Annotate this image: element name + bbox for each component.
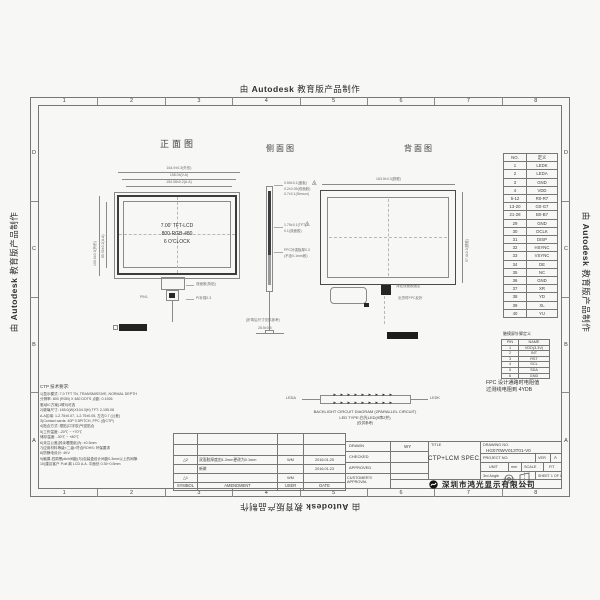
revision-symbol: △2 — [174, 456, 198, 465]
table-cell: 34 — [504, 260, 527, 268]
circuit-lead-right — [411, 399, 428, 400]
table-cell: GND — [527, 277, 558, 285]
revision-row: 新做 2016.01.23 — [174, 465, 346, 474]
watermark-text: 教育版产品制作 — [297, 84, 360, 94]
annotation-label: 1.75±0.1(TFT) — [284, 223, 306, 227]
dimension-label: 163.9±0.3(铁框) — [322, 177, 455, 181]
dimension-line — [106, 202, 107, 268]
zone-cell: 1 — [31, 97, 98, 105]
panel-spec-line2: 800-RGB-480 — [127, 230, 227, 238]
revision-row: △1 WM — [174, 474, 346, 483]
ctp-table-body: 1 VDD(3.3V) 2 INT 3 RST 4 SCL 5 SDA 6 GN… — [502, 345, 550, 379]
revision-symbol: △1 — [174, 474, 198, 483]
table-row: 2 LEDA — [504, 170, 558, 178]
amendment-header: AMENDMENT — [198, 483, 278, 491]
led-row-icons: ▸▸▸▸▸▸▸▸▸ — [321, 392, 409, 399]
leader-line — [186, 285, 194, 286]
ctp-table-title: 触摸屏针脚定义 — [503, 332, 531, 337]
table-cell: 21-28 — [504, 211, 527, 219]
table-row: 1 LEDK — [504, 162, 558, 170]
revision-triangle-number: 2 — [314, 182, 316, 186]
revision-text: 双面胶厚度由1.2mm更改为0.1mm — [198, 456, 278, 465]
zone-cell: D — [30, 106, 38, 202]
revision-empty-rows — [174, 434, 346, 456]
revision-symbol — [174, 465, 198, 474]
ctp-pin-table: PIN NAME 1 VDD(3.3V) 2 INT 3 RST 4 SCL 5… — [501, 339, 550, 379]
zone-cell: 2 — [98, 97, 165, 105]
dimension-line — [462, 192, 463, 283]
table-cell: XL — [527, 301, 558, 309]
table-cell: 35 — [504, 268, 527, 276]
approved-label: APPROVED — [349, 466, 371, 471]
checked-label: CHECKED — [349, 455, 369, 460]
backlight-caption: BACKLIGHT CIRCUIT DIAGRAM (2PARALLEL CIR… — [295, 409, 435, 426]
zone-cell: D — [562, 106, 570, 202]
revision-rows: △2 双面胶厚度由1.2mm更改为0.1mm WM 2016.01.25 新做 … — [174, 456, 346, 483]
title-block-line — [345, 451, 428, 452]
dimension-label: 158.04(V.A) — [122, 173, 236, 177]
table-cell: HSYNC — [527, 244, 558, 252]
zone-cell: 8 — [503, 97, 569, 105]
watermark-text: 由 — [240, 84, 249, 94]
table-cell: 39 — [504, 301, 527, 309]
table-cell: 40 — [504, 309, 527, 317]
table-cell: 30 — [504, 227, 527, 235]
zone-cell: 7 — [435, 97, 502, 105]
watermark-text: 教育版产品制作 — [240, 502, 303, 512]
watermark-left: 由 Autodesk 教育版产品制作 — [8, 172, 20, 372]
dimension-line — [126, 186, 232, 187]
table-cell: DCLK — [527, 227, 558, 235]
title-block-line — [550, 453, 551, 462]
fpc-stiffener-block — [169, 293, 175, 298]
fpc-connector-front — [119, 324, 147, 331]
table-cell: VDD — [527, 186, 558, 194]
table-row: 5-12 R0-R7 — [504, 195, 558, 203]
fpc-note: FPC 设计通路时电阻值 过测线电阻到 4YDB — [486, 380, 566, 395]
symbol-header: SYMBOL — [174, 483, 198, 491]
table-row: 4 VDD — [504, 186, 558, 194]
led-row-icons: ▸▸▸▸▸▸▸▸▸ — [321, 400, 409, 407]
table-cell: DE — [527, 260, 558, 268]
table-row: 40 YU — [504, 309, 558, 317]
table-cell: 2 — [504, 170, 527, 178]
company-logo — [429, 480, 438, 489]
table-cell: LEDA — [527, 170, 558, 178]
table-cell: 6 — [502, 373, 519, 379]
watermark-right: 由 Autodesk 教育版产品制作 — [580, 172, 592, 372]
table-row: 37 XR — [504, 285, 558, 293]
dimension-label: 85.92±0.2(A.A) — [101, 234, 105, 258]
title-label: TITLE — [431, 443, 441, 448]
table-cell: 29 — [504, 219, 527, 227]
scale-value: FIT — [549, 465, 555, 470]
unit-value: mm — [511, 465, 517, 470]
scale-label: SCALE — [524, 465, 536, 470]
technical-notes: CTP 技术要求: 1)显示模式: 7.0 TFT TN, TRANSMISSI… — [40, 384, 174, 467]
watermark-text: 由 — [581, 212, 591, 221]
panel-spec-line3: 6 O'CLOCK — [127, 238, 227, 246]
revision-date: 2016.01.25 — [304, 456, 346, 465]
annotation-label: PIN1 — [140, 295, 148, 299]
table-cell: 38 — [504, 293, 527, 301]
title-block-line — [508, 462, 509, 471]
leader-line — [274, 252, 283, 253]
table-row: 29 GND — [504, 219, 558, 227]
table-cell: NC — [527, 268, 558, 276]
annotation-label: 双面胶(背贴) — [196, 282, 216, 286]
panel-spec-line1: 7.00' TFT-LCD — [127, 222, 227, 230]
notes-lines: 1)显示模式: 7.0 TFT TN, TRANSMISSIVE, NORMAL… — [40, 392, 174, 467]
zone-cell: 6 — [368, 489, 435, 497]
table-cell: GND — [527, 178, 558, 186]
zone-cell: 1 — [31, 489, 98, 497]
dimension-line — [99, 196, 100, 276]
zone-cell: 2 — [98, 489, 165, 497]
annotation-label: PI补强0.3 — [196, 296, 211, 300]
annotation-label: 0.55±0.1(盖板) — [284, 181, 307, 185]
zone-cell: 6 — [368, 97, 435, 105]
fpc-connector-tab — [113, 325, 118, 330]
revision-user: WM — [278, 456, 304, 465]
circuit-rail-end — [410, 395, 411, 404]
watermark-bottom: 由 Autodesk 教育版产品制作 — [0, 501, 600, 513]
table-cell: G0-G7 — [527, 203, 558, 211]
fpc-note-line2: 过测线电阻到 4YDB — [486, 387, 566, 394]
revision-header-row: SYMBOL AMENDMENT USER DATE — [174, 483, 346, 491]
pin-no-header: NO. — [504, 154, 527, 162]
drawing-no-label: DRAWING NO. — [483, 443, 509, 448]
table-cell: 1 — [504, 162, 527, 170]
zone-cell: B — [562, 298, 570, 394]
dimension-label: 164.9±0.3(外形) — [118, 166, 240, 170]
sheet-label: SHEET 1 OF 1 — [538, 474, 562, 478]
side-profile-fill-light — [268, 255, 271, 285]
user-header: USER — [278, 483, 304, 491]
table-row: 1 VDD(3.3V) — [502, 345, 550, 351]
table-cell: 37 — [504, 285, 527, 293]
revision-text: 新做 — [198, 465, 278, 474]
zone-cell: C — [30, 202, 38, 298]
table-row: 21-28 B0-B7 — [504, 211, 558, 219]
watermark-text: 由 — [9, 323, 19, 332]
table-row: 33 VSYNC — [504, 252, 558, 260]
back-fpc-connector — [387, 332, 418, 339]
back-fpc-stiffener — [381, 285, 391, 295]
document-title: CTP+LCM SPEC. — [428, 455, 480, 462]
project-no-label: PROJECT NO. — [483, 456, 508, 461]
company-name: 深圳市鸿光显示有限公司 — [442, 480, 536, 489]
revision-table: △2 双面胶厚度由1.2mm更改为0.1mm WM 2016.01.25 新做 … — [173, 433, 346, 491]
angle-label: 3rd Angle — [483, 474, 499, 479]
leda-label: LEDA — [286, 396, 296, 401]
drawn-label: DRAWN — [349, 444, 364, 449]
side-profile-fill-dark — [268, 191, 271, 255]
table-cell: GND — [519, 373, 550, 379]
back-fpc-fold-outline — [330, 287, 367, 304]
back-view-title: 背面图 — [404, 144, 434, 154]
table-cell: R0-R7 — [527, 195, 558, 203]
title-block-line — [535, 453, 536, 462]
title-block-line — [543, 462, 544, 471]
note-line: 10)建议客户 P.olt 离 LCD A.A. 平面处 0.35~0.5mm — [40, 462, 174, 467]
table-cell: YD — [527, 293, 558, 301]
table-cell: 33 — [504, 252, 527, 260]
annotation-label: 背贴双面胶固定 — [396, 284, 421, 288]
table-cell: YU — [527, 309, 558, 317]
dimension-line — [322, 184, 455, 185]
title-block-line — [345, 473, 428, 474]
table-cell: LEDK — [527, 162, 558, 170]
pin-definition-table: NO. 定义 1 LEDK 2 LEDA 3 GND 4 VDD 5-12 R0… — [503, 153, 558, 318]
annotation-label: FPC补强板厚0.3 — [284, 248, 310, 252]
ledk-label: LEDK — [430, 396, 440, 401]
title-block-line — [345, 462, 428, 463]
table-cell: 36 — [504, 277, 527, 285]
side-fpc-line — [269, 292, 270, 330]
drawing-no-value: HG070WV013T01-V0 — [486, 448, 531, 454]
zone-cell: A — [30, 393, 38, 488]
dimension-line — [256, 333, 284, 334]
back-fpc-dot — [364, 303, 369, 307]
revision-text — [198, 474, 278, 483]
dimension-label: 28.5±0.5 — [258, 326, 272, 330]
zone-cell: 8 — [503, 489, 569, 497]
table-row: 6 GND — [502, 373, 550, 379]
zone-cell: A — [562, 393, 570, 488]
zone-numbers-top: 1 2 3 4 5 6 7 8 — [31, 97, 569, 105]
table-row: 3 GND — [504, 178, 558, 186]
table-cell: B0-B7 — [527, 211, 558, 219]
leader-line — [384, 296, 385, 324]
watermark-brand: Autodesk — [9, 278, 19, 321]
revision-date: 2016.01.23 — [304, 465, 346, 474]
leader-line — [186, 299, 194, 300]
table-cell: VSYNC — [527, 252, 558, 260]
table-header-row: NO. 定义 — [504, 154, 558, 162]
centerline-horizontal — [329, 237, 447, 238]
table-row: 35 NC — [504, 268, 558, 276]
table-row: 36 GND — [504, 277, 558, 285]
table-row: 38 YD — [504, 293, 558, 301]
watermark-top: 由 Autodesk 教育版产品制作 — [0, 83, 600, 95]
table-row — [174, 445, 346, 456]
title-block-line — [535, 471, 536, 479]
title-block-line — [521, 462, 522, 471]
table-row: 39 XL — [504, 301, 558, 309]
revision-row: △2 双面胶厚度由1.2mm更改为0.1mm WM 2016.01.25 — [174, 456, 346, 465]
table-cell: 5-12 — [504, 195, 527, 203]
annotation-label: 出货时FPC反折 — [398, 296, 423, 300]
zone-cell: B — [30, 298, 38, 394]
ver-value: A — [554, 455, 557, 460]
side-view-title: 侧面图 — [266, 144, 296, 154]
annotation-label: 0.2±0.05(双面胶) — [284, 187, 310, 191]
table-row — [174, 434, 346, 445]
annotation-label: (折弯后尺寸仅供参考) — [246, 318, 280, 322]
dimension-label: 154.08±0.2(A.A) — [126, 180, 232, 184]
panel-spec-text: 7.00' TFT-LCD 800-RGB-480 6 O'CLOCK — [127, 222, 227, 246]
table-row: 30 DCLK — [504, 227, 558, 235]
table-row: 13-20 G0-G7 — [504, 203, 558, 211]
table-row: 31 DISP — [504, 236, 558, 244]
revision-triangle-icon: △2 — [312, 180, 317, 187]
leader-line — [274, 227, 283, 228]
annotation-label: (不含0.1mm胶) — [284, 254, 308, 258]
fpc-wire-line — [172, 301, 173, 322]
unit-label: UNIT — [489, 465, 498, 470]
revision-date — [304, 474, 346, 483]
revision-triangle-icon: △1 — [305, 221, 310, 228]
dimension-label: 100.0±0.3(外形) — [93, 241, 97, 266]
customer-approval-label: CUSTOMER'S APPROVAL — [347, 476, 389, 486]
watermark-brand: Autodesk — [581, 224, 591, 267]
ver-label: VER — [538, 456, 546, 461]
table-cell: GND — [527, 219, 558, 227]
table-cell: 4 — [504, 186, 527, 194]
leader-line — [274, 185, 283, 186]
table-cell: 13-20 — [504, 203, 527, 211]
title-block-line — [390, 441, 391, 489]
backlight-caption-line3: (仅供参考) — [295, 421, 435, 426]
drawn-value: WY — [404, 444, 411, 449]
zone-cell: C — [562, 202, 570, 298]
revision-user — [278, 465, 304, 474]
front-view-title: 正面图 — [160, 139, 196, 150]
table-cell: 3 — [504, 178, 527, 186]
watermark-brand: Autodesk — [252, 84, 295, 94]
table-cell: 32 — [504, 244, 527, 252]
watermark-text: 由 — [351, 502, 360, 512]
zone-cell: 4 — [233, 97, 300, 105]
watermark-brand: Autodesk — [306, 502, 349, 512]
notes-title: CTP 技术要求: — [40, 384, 174, 390]
annotation-label: 0.1(双面胶) — [284, 229, 302, 233]
table-cell: XR — [527, 285, 558, 293]
table-row: 32 HSYNC — [504, 244, 558, 252]
zone-letters-right: D C B A — [562, 106, 570, 488]
revision-user: WM — [278, 474, 304, 483]
annotation-label: 0.7±0.1(Sensor) — [284, 192, 309, 196]
zone-cell: 7 — [435, 489, 502, 497]
zone-cell: 5 — [301, 97, 368, 105]
circuit-lead-left — [302, 399, 320, 400]
table-row: 34 DE — [504, 260, 558, 268]
table-cell: 31 — [504, 236, 527, 244]
drawing-sheet: 由 Autodesk 教育版产品制作 由 Autodesk 教育版产品制作 由 … — [0, 0, 600, 600]
watermark-text: 教育版产品制作 — [581, 269, 591, 332]
zone-cell: 3 — [166, 97, 233, 105]
zone-letters-left: D C B A — [30, 106, 38, 488]
dimension-label: 97.4±0.3(铁框) — [465, 239, 469, 262]
watermark-text: 教育版产品制作 — [9, 212, 19, 275]
revision-triangle-number: 1 — [307, 223, 309, 227]
table-cell: DISP — [527, 236, 558, 244]
fpc-tail-upper — [161, 277, 185, 290]
pin-def-header: 定义 — [527, 154, 558, 162]
date-header: DATE — [304, 483, 346, 491]
pin-table-body: 1 LEDK 2 LEDA 3 GND 4 VDD 5-12 R0-R7 13-… — [504, 162, 558, 318]
